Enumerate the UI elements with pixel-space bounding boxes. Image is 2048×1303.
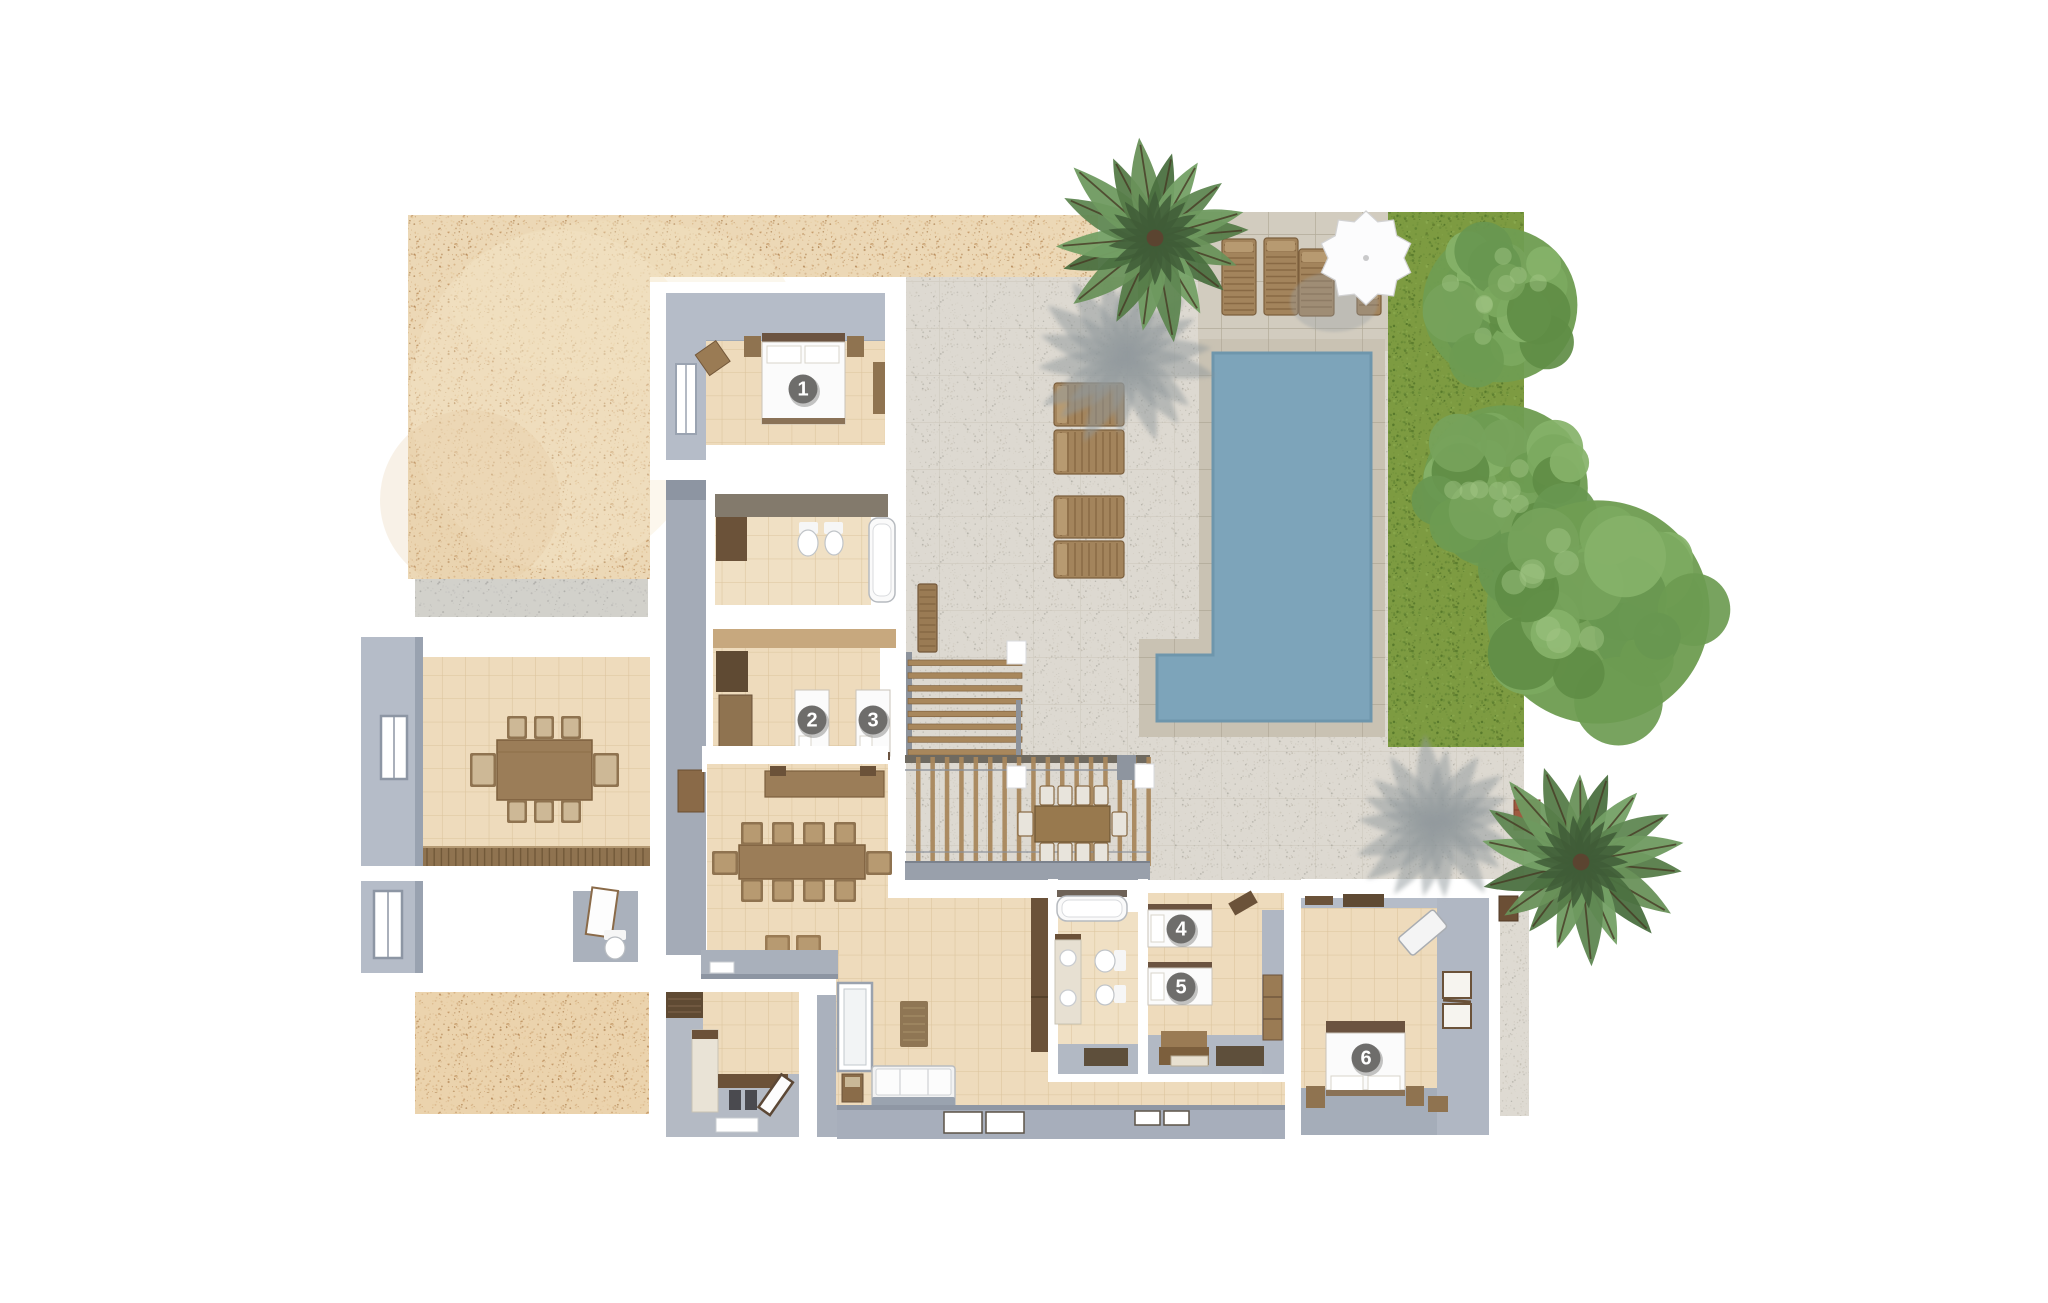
svg-text:3: 3 [867, 710, 878, 732]
svg-text:1: 1 [797, 379, 808, 401]
svg-text:6: 6 [1360, 1048, 1371, 1070]
svg-text:2: 2 [806, 710, 817, 732]
svg-text:4: 4 [1175, 919, 1187, 941]
svg-text:5: 5 [1175, 977, 1186, 999]
